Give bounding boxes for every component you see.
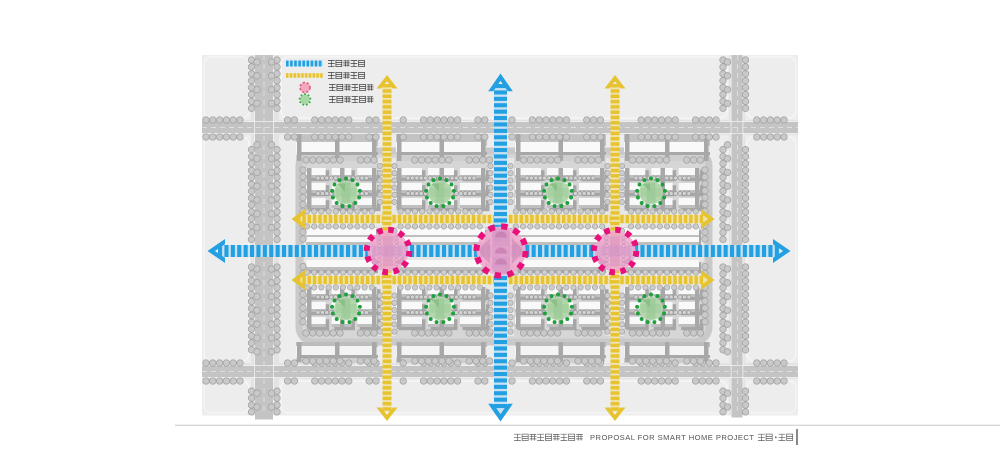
svg-text:PROPOSAL FOR SMART HOME PR: PROPOSAL FOR SMART HOME PROJECT: [590, 433, 754, 442]
